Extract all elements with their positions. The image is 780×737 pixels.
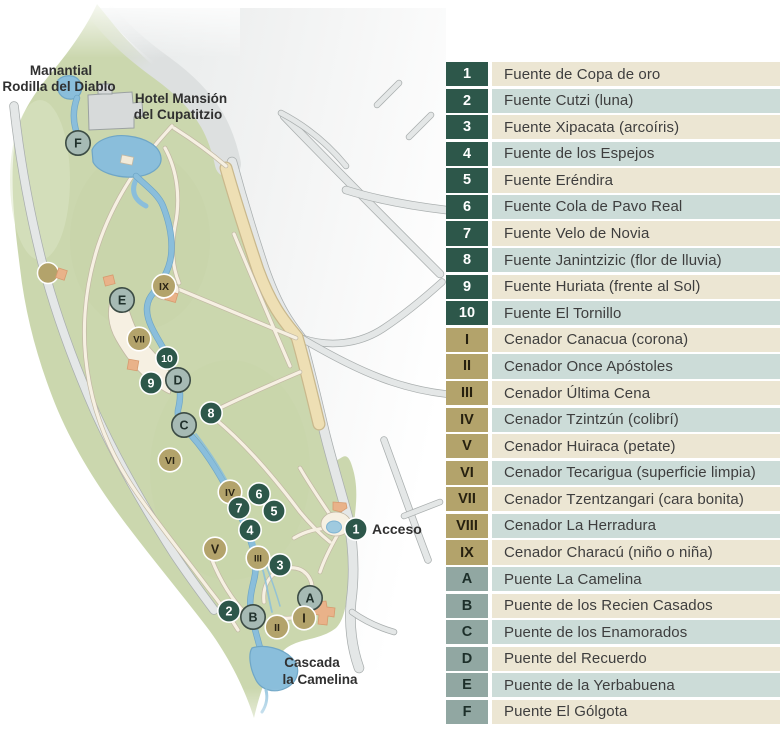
map-marker-9: 9: [140, 372, 162, 394]
legend-label: Fuente de Copa de oro: [492, 62, 780, 86]
legend-label: Fuente de los Espejos: [492, 142, 780, 166]
marker-label: 5: [271, 505, 278, 519]
marker-label: IV: [225, 487, 235, 499]
legend-row: C Puente de los Enamorados: [446, 620, 780, 644]
marker-label: 9: [148, 377, 155, 391]
legend-row: VII Cenador Tzentzangari (cara bonita): [446, 487, 780, 511]
legend-row: 9 Fuente Huriata (frente al Sol): [446, 275, 780, 299]
legend-label: Puente El Gólgota: [492, 700, 780, 724]
label-manantial: Manantial: [30, 63, 92, 78]
map-marker-10: 10: [156, 347, 178, 369]
marker-label: E: [118, 294, 126, 308]
legend-label: Fuente Velo de Novia: [492, 221, 780, 245]
legend-badge: F: [446, 700, 488, 724]
legend-label: Puente La Camelina: [492, 567, 780, 591]
legend-badge: 5: [446, 168, 488, 192]
label-manantial-2: Rodilla del Diablo: [2, 79, 115, 94]
legend-label: Puente del Recuerdo: [492, 647, 780, 671]
map-marker-D: D: [166, 368, 190, 392]
legend-badge: V: [446, 434, 488, 458]
label-acceso: Acceso: [372, 521, 422, 537]
legend-badge: C: [446, 620, 488, 644]
marker-label: II: [274, 622, 280, 634]
legend-row: B Puente de los Recien Casados: [446, 594, 780, 618]
map-marker-II: II: [265, 615, 289, 639]
legend-label: Fuente Xipacata (arcoíris): [492, 115, 780, 139]
marker-label: 2: [226, 605, 233, 619]
legend-label: Cenador Canacua (corona): [492, 328, 780, 352]
bottom-fade: [170, 688, 370, 737]
legend-row: IX Cenador Characú (niño o niña): [446, 540, 780, 564]
legend-row: I Cenador Canacua (corona): [446, 328, 780, 352]
legend-row: E Puente de la Yerbabuena: [446, 673, 780, 697]
legend-row: 4 Fuente de los Espejos: [446, 142, 780, 166]
marker-label: IX: [159, 281, 169, 293]
legend-row: 10 Fuente El Tornillo: [446, 301, 780, 325]
legend-row: 3 Fuente Xipacata (arcoíris): [446, 115, 780, 139]
map-marker-V: V: [203, 537, 227, 561]
legend-row: A Puente La Camelina: [446, 567, 780, 591]
legend-label: Fuente Cola de Pavo Real: [492, 195, 780, 219]
top-fade: [0, 0, 240, 58]
legend-badge: II: [446, 354, 488, 378]
marker-label: VI: [165, 455, 175, 467]
entrance-pond: [327, 521, 342, 533]
map-marker-1: 1: [345, 518, 367, 540]
label-hotel-2: del Cupatitzio: [134, 107, 223, 122]
legend-label: Cenador Characú (niño o niña): [492, 540, 780, 564]
legend-row: 2 Fuente Cutzi (luna): [446, 89, 780, 113]
legend-row: F Puente El Gólgota: [446, 700, 780, 724]
legend-row: VI Cenador Tecarigua (superficie limpia): [446, 461, 780, 485]
legend-row: 8 Fuente Janintzizic (flor de lluvia): [446, 248, 780, 272]
legend-row: IV Cenador Tzintzún (colibrí): [446, 408, 780, 432]
marker-label: D: [173, 374, 182, 388]
map-marker-VI: VI: [158, 448, 182, 472]
label-cascada: Cascada: [284, 655, 340, 670]
legend-badge: 8: [446, 248, 488, 272]
legend-row: VIII Cenador La Herradura: [446, 514, 780, 538]
legend-row: III Cenador Última Cena: [446, 381, 780, 405]
marker-label: III: [254, 553, 262, 564]
legend-badge: 1: [446, 62, 488, 86]
legend-badge: VI: [446, 461, 488, 485]
marker-label: C: [179, 419, 188, 433]
legend-badge: B: [446, 594, 488, 618]
legend-row: II Cenador Once Apóstoles: [446, 354, 780, 378]
marker-label: F: [74, 137, 82, 151]
legend-badge: VIII: [446, 514, 488, 538]
legend-label: Cenador Última Cena: [492, 381, 780, 405]
marker-label: 7: [236, 502, 243, 516]
legend-row: 5 Fuente Eréndira: [446, 168, 780, 192]
park-map: FEIXVII10D98CVIIV65741VIII3A2BIII Manant…: [0, 0, 446, 737]
legend-label: Cenador Tzintzún (colibrí): [492, 408, 780, 432]
legend-badge: 6: [446, 195, 488, 219]
legend-badge: 3: [446, 115, 488, 139]
map-marker-3: 3: [269, 554, 291, 576]
legend-badge: 4: [446, 142, 488, 166]
marker-label: 4: [247, 524, 254, 538]
map-marker-VII: VII: [127, 327, 151, 351]
legend-badge: IV: [446, 408, 488, 432]
legend-badge: III: [446, 381, 488, 405]
legend-table: 1 Fuente de Copa de oro 2 Fuente Cutzi (…: [446, 62, 780, 724]
legend-label: Fuente Janintzizic (flor de lluvia): [492, 248, 780, 272]
map-marker-8: 8: [200, 402, 222, 424]
legend-badge: 7: [446, 221, 488, 245]
legend-badge: A: [446, 567, 488, 591]
legend-label: Cenador Tecarigua (superficie limpia): [492, 461, 780, 485]
legend-badge: 2: [446, 89, 488, 113]
park-infographic: FEIXVII10D98CVIIV65741VIII3A2BIII Manant…: [0, 0, 780, 737]
marker-label: 10: [161, 353, 173, 365]
map-marker-III: III: [246, 546, 270, 570]
round-structure: [38, 263, 59, 284]
map-marker-I: I: [292, 606, 316, 630]
legend-row: V Cenador Huiraca (petate): [446, 434, 780, 458]
legend-badge: 10: [446, 301, 488, 325]
legend-label: Cenador La Herradura: [492, 514, 780, 538]
small-building: [103, 275, 115, 286]
legend-label: Cenador Once Apóstoles: [492, 354, 780, 378]
marker-label: B: [248, 611, 257, 625]
map-marker-4: 4: [239, 519, 261, 541]
marker-label: A: [305, 592, 314, 606]
legend-badge: I: [446, 328, 488, 352]
marker-label: 8: [208, 407, 215, 421]
marker-label: VII: [133, 334, 145, 345]
legend-row: 7 Fuente Velo de Novia: [446, 221, 780, 245]
map-marker-IX: IX: [152, 274, 176, 298]
marker-label: I: [302, 612, 305, 626]
legend-label: Fuente Eréndira: [492, 168, 780, 192]
legend-row: D Puente del Recuerdo: [446, 647, 780, 671]
legend-label: Cenador Tzentzangari (cara bonita): [492, 487, 780, 511]
legend-label: Fuente Cutzi (luna): [492, 89, 780, 113]
legend-badge: IX: [446, 540, 488, 564]
legend-badge: VII: [446, 487, 488, 511]
map-marker-7: 7: [228, 497, 250, 519]
map-marker-5: 5: [263, 500, 285, 522]
map-marker-2: 2: [218, 600, 240, 622]
small-building: [127, 359, 139, 371]
legend-badge: E: [446, 673, 488, 697]
legend-badge: 9: [446, 275, 488, 299]
map-marker-F: F: [66, 131, 90, 155]
legend-label: Fuente El Tornillo: [492, 301, 780, 325]
legend-label: Cenador Huiraca (petate): [492, 434, 780, 458]
map-marker-E: E: [110, 288, 134, 312]
marker-label: 1: [353, 523, 360, 537]
legend-label: Puente de los Enamorados: [492, 620, 780, 644]
marker-label: 3: [277, 559, 284, 573]
legend-label: Puente de la Yerbabuena: [492, 673, 780, 697]
map-marker-C: C: [172, 413, 196, 437]
label-hotel: Hotel Mansión: [135, 91, 227, 106]
legend-row: 6 Fuente Cola de Pavo Real: [446, 195, 780, 219]
legend-label: Fuente Huriata (frente al Sol): [492, 275, 780, 299]
legend-row: 1 Fuente de Copa de oro: [446, 62, 780, 86]
legend-badge: D: [446, 647, 488, 671]
label-cascada-2: la Camelina: [282, 672, 358, 687]
marker-label: 6: [256, 488, 263, 502]
legend-label: Puente de los Recien Casados: [492, 594, 780, 618]
marker-label: V: [211, 543, 220, 557]
map-marker-B: B: [241, 605, 265, 629]
